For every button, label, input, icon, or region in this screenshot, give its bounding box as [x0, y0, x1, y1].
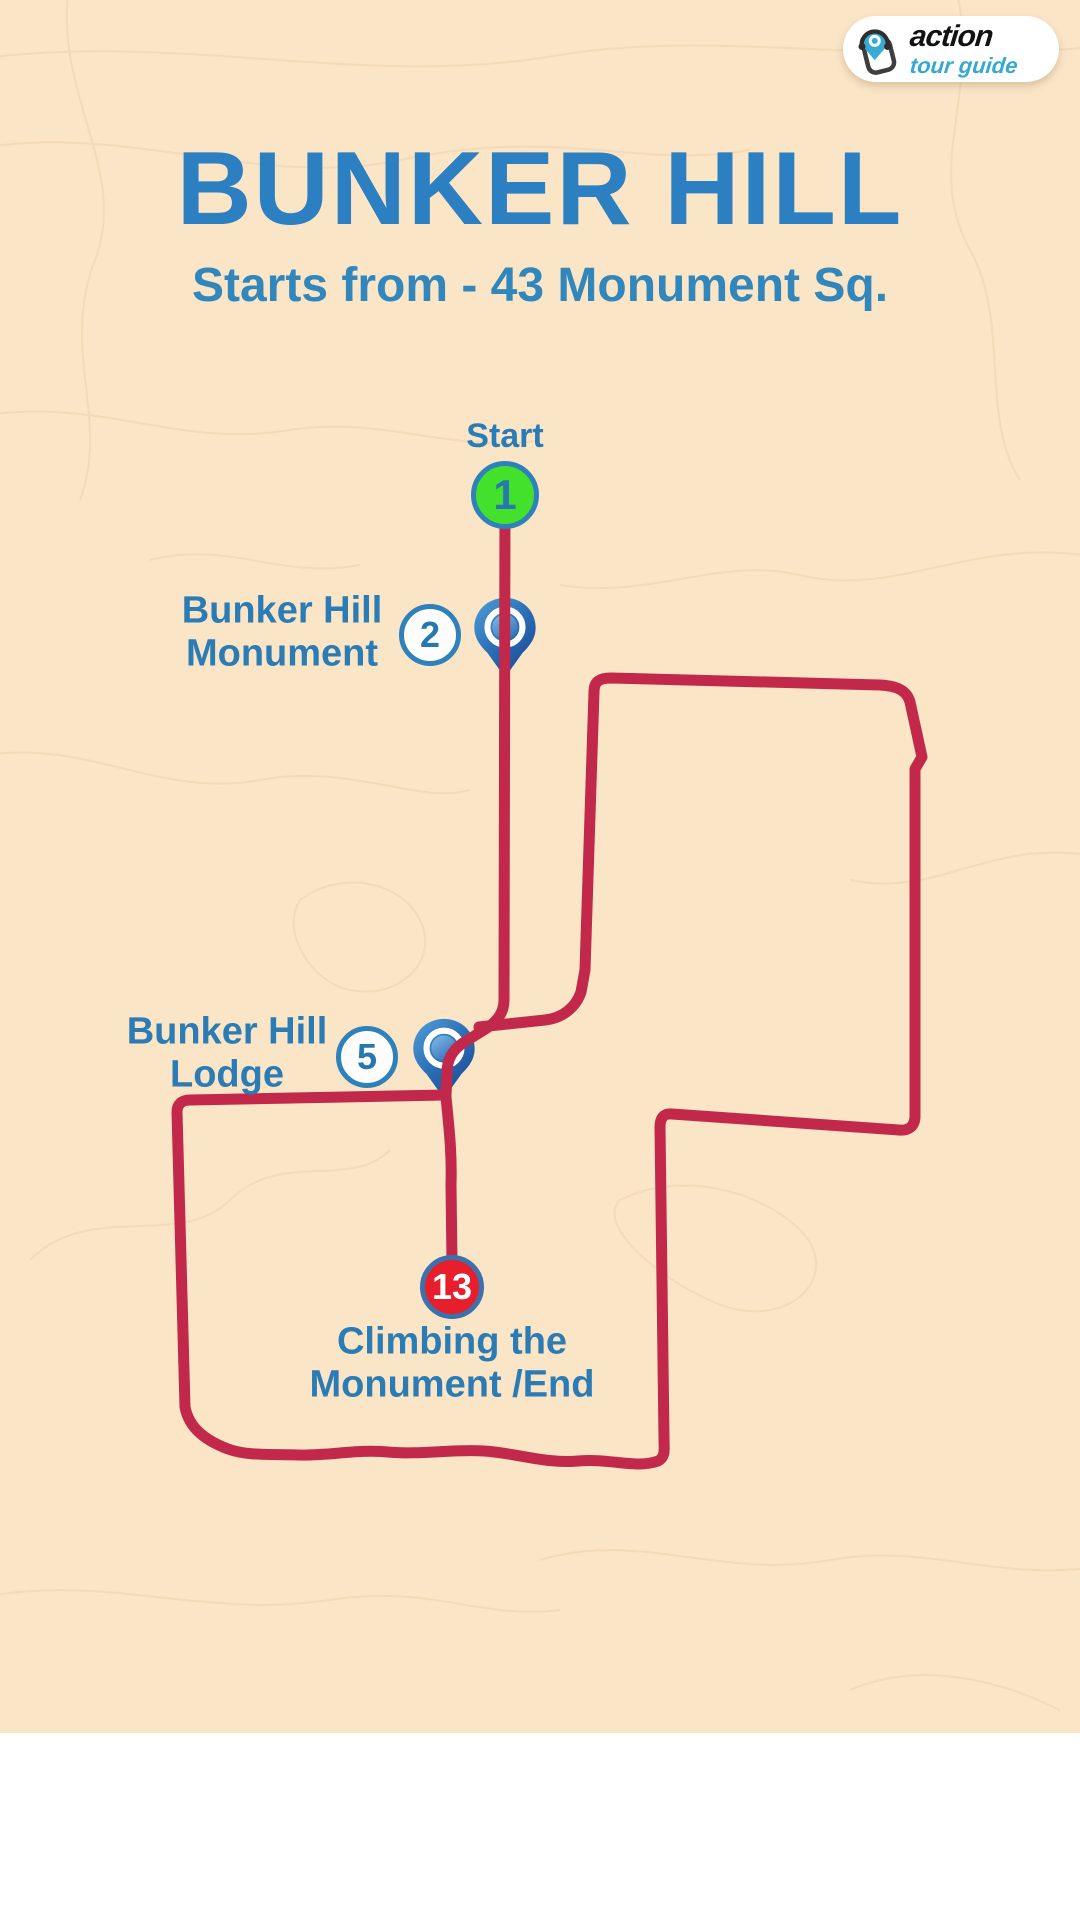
monument-label: Bunker Hill Monument — [182, 589, 383, 674]
brand-wordmark: action tour guide — [910, 22, 1018, 77]
lodge-label-line1: Bunker Hill — [127, 1010, 328, 1053]
lodge-label: Bunker Hill Lodge — [127, 1010, 328, 1095]
brand-logo: action tour guide — [843, 16, 1059, 82]
monument-label-line1: Bunker Hill — [182, 589, 383, 632]
page-subtitle: Starts from - 43 Monument Sq. — [0, 258, 1080, 313]
map-legend-panel: Map Legend Start Point End Point Must Vi… — [0, 1733, 1080, 1920]
tour-guide-pin-icon — [846, 19, 906, 79]
end-label: Climbing the Monument /End — [310, 1320, 595, 1405]
tour-map-screen: action tour guide BUNKER HILL Starts fro… — [0, 0, 1080, 1920]
lodge-stop-marker: 5 — [336, 1026, 398, 1088]
brand-name-tour-guide: tour guide — [909, 55, 1019, 77]
lodge-label-line2: Lodge — [127, 1053, 328, 1096]
end-point-marker: 13 — [420, 1255, 484, 1319]
monument-label-line2: Monument — [182, 632, 383, 675]
monument-stop-marker: 2 — [399, 604, 461, 666]
end-label-line1: Climbing the — [310, 1320, 595, 1363]
end-label-line2: Monument /End — [310, 1363, 595, 1406]
page-title: BUNKER HILL — [0, 132, 1080, 246]
start-label: Start — [466, 417, 543, 455]
start-point-marker: 1 — [471, 461, 539, 529]
brand-name-action: action — [908, 22, 1019, 52]
